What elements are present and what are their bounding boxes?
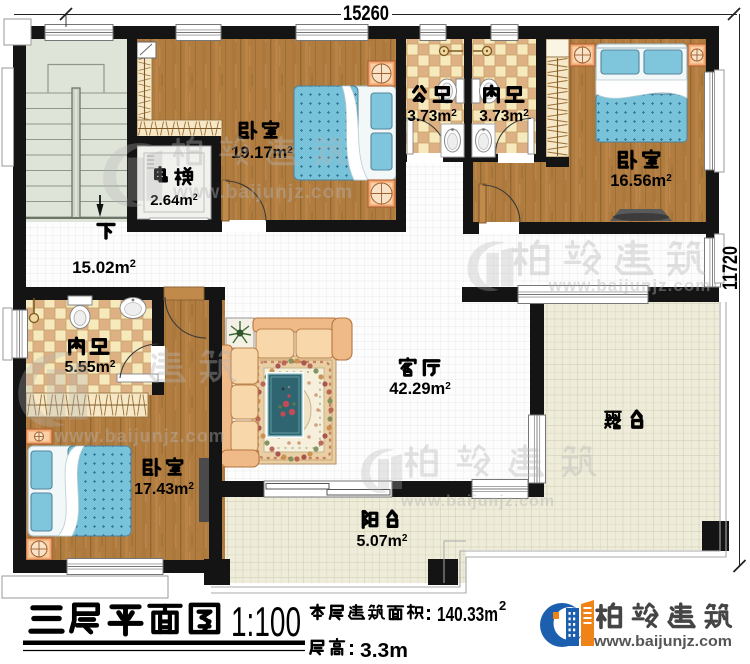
svg-text:15.02m2: 15.02m2 [72,258,136,277]
svg-text:5.07m2: 5.07m2 [357,533,408,550]
svg-text:1:100: 1:100 [231,598,301,645]
svg-text:140.33m: 140.33m [437,604,498,626]
svg-text:17.43m2: 17.43m2 [134,481,194,498]
svg-text:11720: 11720 [719,246,742,290]
svg-text:www.baijunjz.com: www.baijunjz.com [593,633,732,650]
svg-text:3.73m2: 3.73m2 [407,108,457,125]
svg-text:www.baijunjz.com: www.baijunjz.com [53,426,225,446]
svg-text:15260: 15260 [343,2,389,25]
svg-text:www.baijunjz.com: www.baijunjz.com [400,493,555,510]
svg-text:16.56m2: 16.56m2 [610,172,672,190]
svg-text:3.73m2: 3.73m2 [479,108,529,125]
svg-text:42.29m2: 42.29m2 [389,380,451,398]
svg-text:www.baijunjz.com: www.baijunjz.com [172,182,353,203]
svg-text:www.baijunjz.com: www.baijunjz.com [548,276,712,295]
svg-text:2: 2 [499,598,506,613]
svg-text:3.3m: 3.3m [360,640,408,662]
